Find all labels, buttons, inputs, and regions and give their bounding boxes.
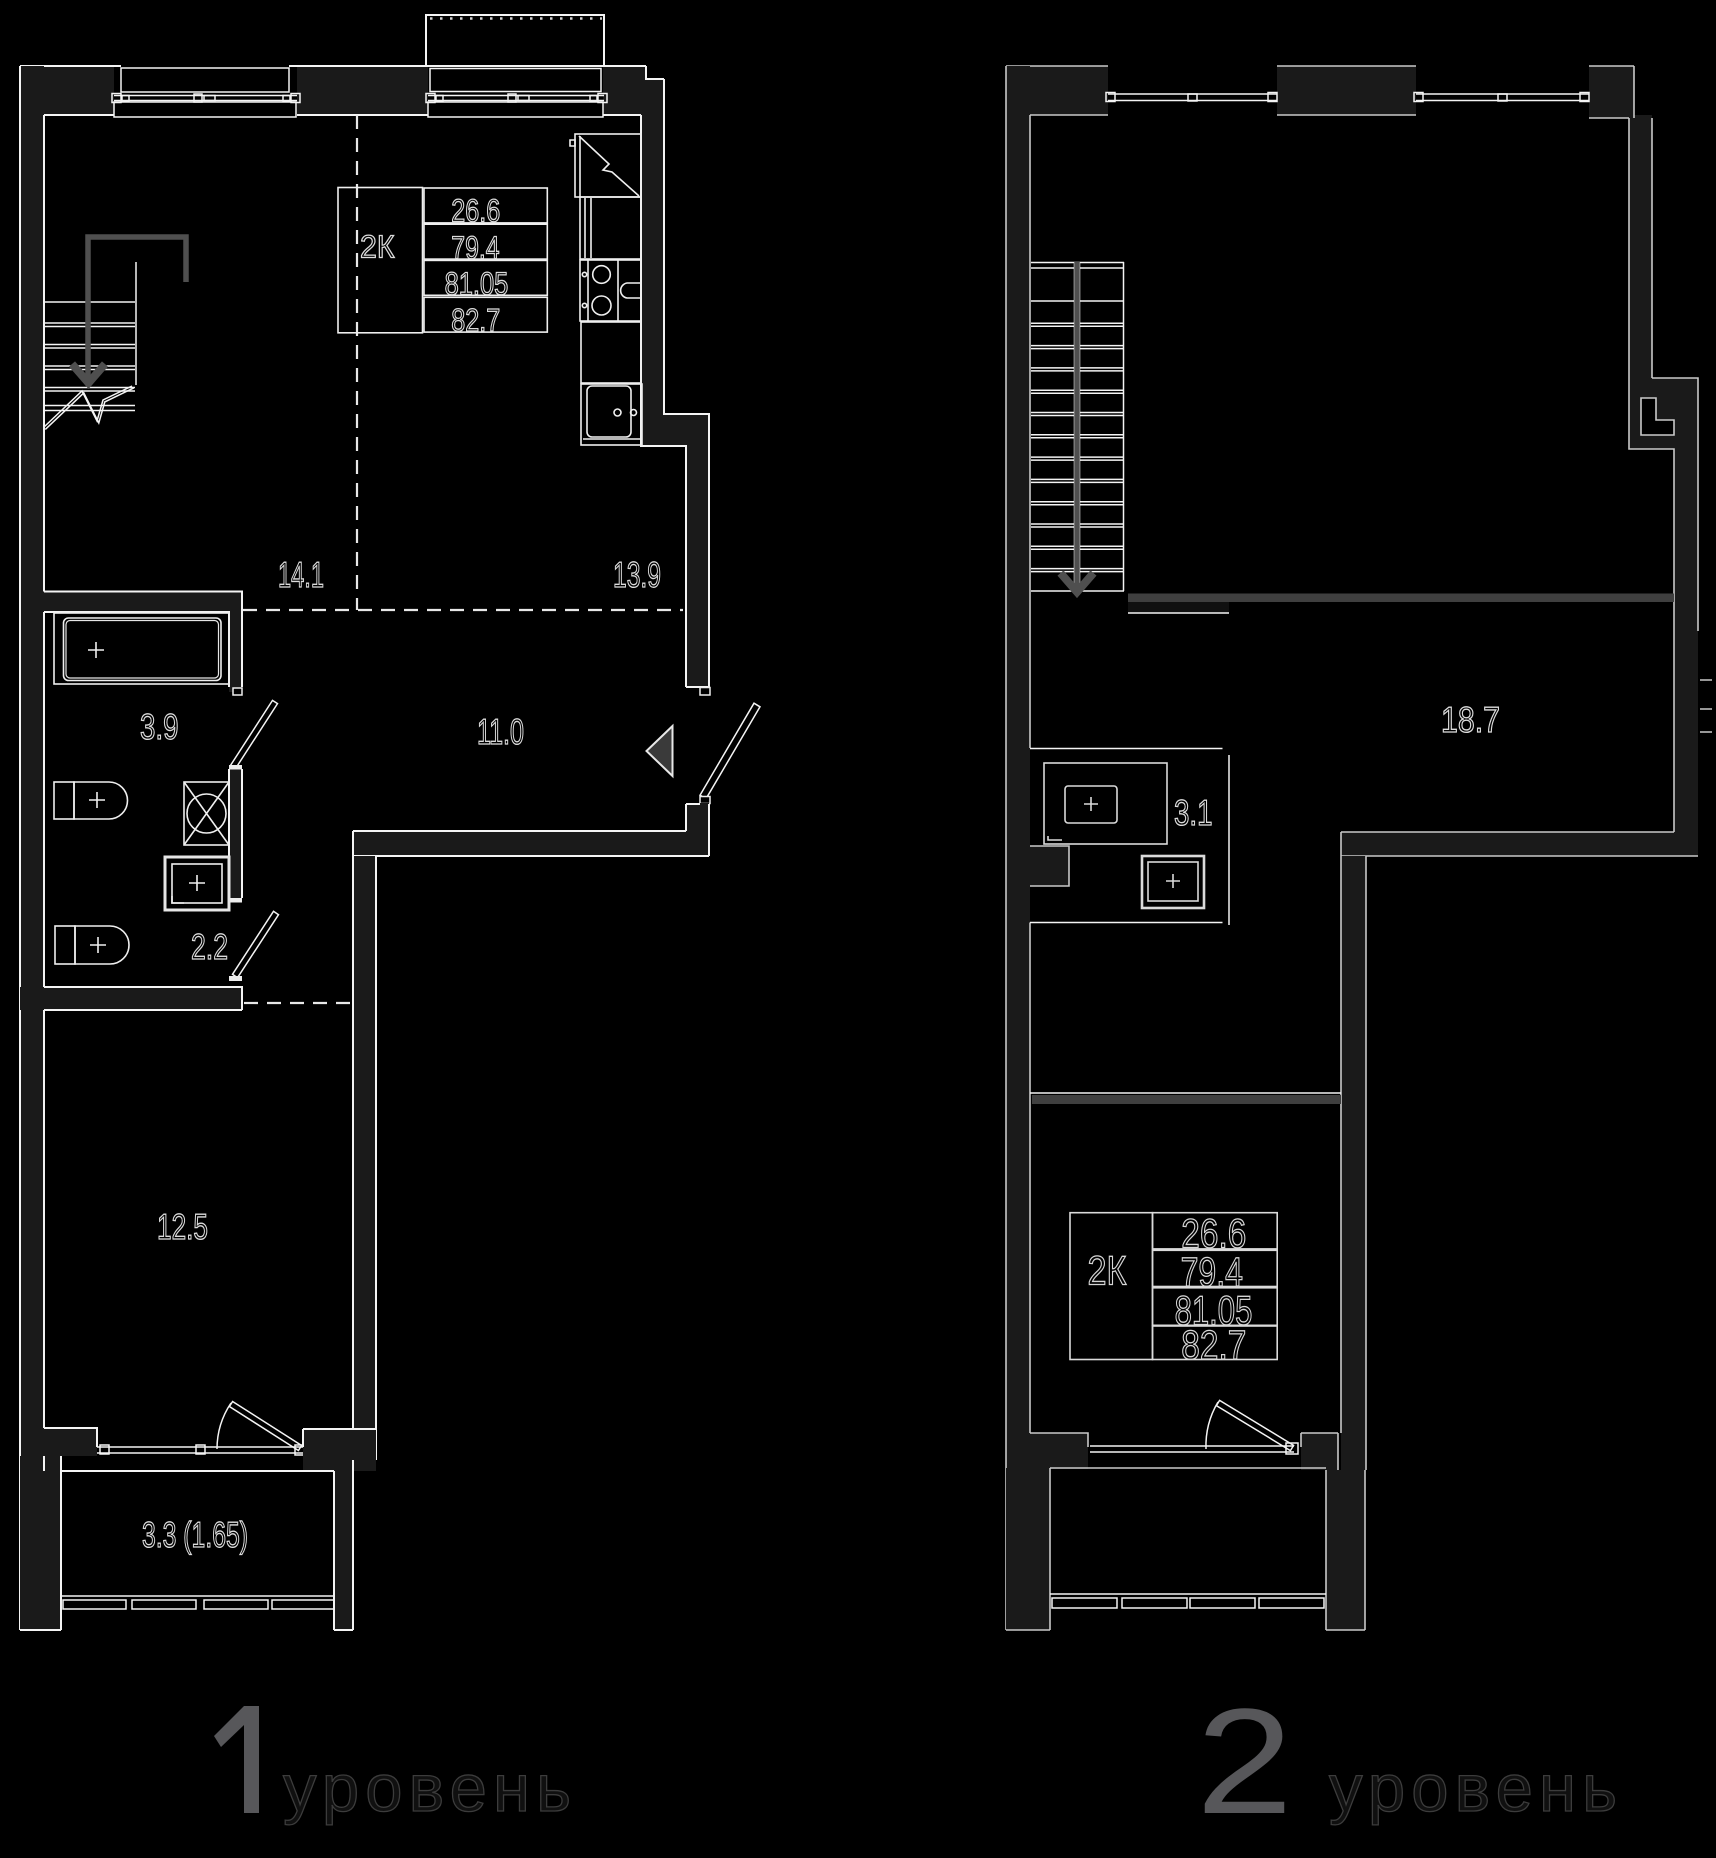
svg-text:26.6: 26.6: [451, 193, 500, 229]
svg-text:12.5: 12.5: [157, 1206, 208, 1247]
svg-text:79.4: 79.4: [451, 230, 499, 266]
svg-text:13.9: 13.9: [613, 554, 661, 595]
svg-text:2К: 2К: [1088, 1248, 1127, 1294]
svg-text:уровень: уровень: [1329, 1751, 1617, 1826]
svg-text:14.1: 14.1: [278, 554, 324, 595]
svg-text:2: 2: [1196, 1677, 1293, 1845]
svg-text:3.3 (1.65): 3.3 (1.65): [142, 1514, 248, 1555]
svg-text:82.7: 82.7: [1181, 1322, 1246, 1368]
svg-text:3.9: 3.9: [140, 706, 179, 747]
svg-text:18.7: 18.7: [1441, 699, 1500, 740]
svg-text:11.0: 11.0: [477, 711, 524, 752]
svg-text:82.7: 82.7: [451, 302, 500, 338]
svg-text:81.05: 81.05: [445, 266, 509, 302]
svg-text:2К: 2К: [360, 229, 395, 265]
svg-text:уровень: уровень: [283, 1751, 571, 1826]
svg-text:2.2: 2.2: [191, 926, 228, 967]
svg-text:3.1: 3.1: [1174, 792, 1213, 833]
